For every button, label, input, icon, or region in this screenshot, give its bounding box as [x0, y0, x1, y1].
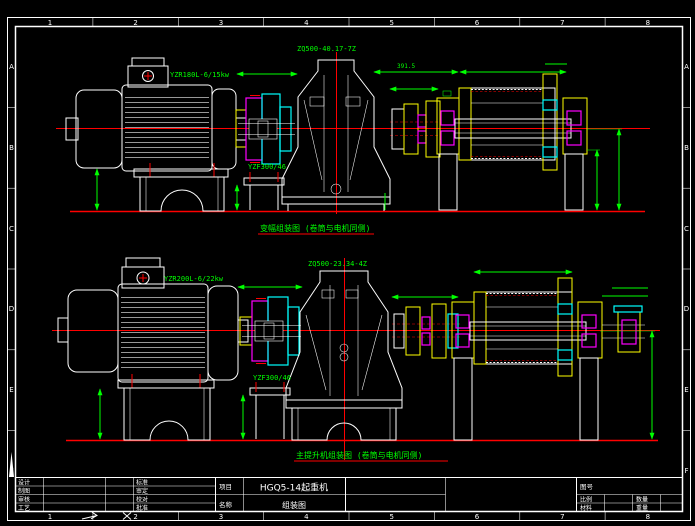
tb-label: 校对: [136, 496, 148, 504]
reducer-label-top: ZQ500-40.17-7Z: [297, 45, 356, 53]
tb-label: 批准: [136, 504, 148, 512]
tb-label: 审核: [18, 496, 30, 504]
brake-coupling-top: [236, 94, 295, 210]
project-label: 项目: [219, 483, 232, 491]
ruler-label: F: [684, 467, 688, 475]
ruler-label: 3: [219, 19, 223, 27]
name-label: 名称: [219, 500, 233, 509]
ruler-label: 2: [133, 513, 137, 521]
tb-label: 制图: [18, 487, 30, 495]
drum-bottom: [452, 278, 645, 440]
drawing-no-label: 图号: [580, 483, 594, 491]
ruler-ticks-sides: [8, 107, 691, 430]
ruler-label: 4: [304, 513, 309, 521]
reducer-label-bottom: ZQ500-23.34-4Z: [308, 260, 367, 268]
drum-pedestal-left: [454, 358, 472, 440]
sheet-frame: 1 2 3 4 5 6 7 8 1 2 3 4 5 6 7 8 A B C D …: [8, 18, 691, 522]
title-block: 设计 制图 审核 工艺 标准 审定 校对 批准 项目 HGQ5-14起重机 名称…: [16, 478, 683, 513]
ruler-label: 8: [646, 513, 650, 521]
motor-fins: [121, 294, 205, 372]
ruler-label: 4: [304, 19, 309, 27]
coupling-label-bottom: YZF300/46: [253, 374, 291, 382]
motor-bottom: [58, 258, 248, 440]
ruler-label: D: [684, 305, 689, 313]
view-top: 391.5 YZR180L-6/15kw YZF300/46 ZQ500-40.…: [56, 45, 650, 234]
inner-frame: [16, 27, 683, 512]
ruler-label: 7: [560, 19, 564, 27]
cad-canvas: 1 2 3 4 5 6 7 8 1 2 3 4 5 6 7 8 A B C D …: [0, 0, 695, 526]
ruler-label: 5: [389, 513, 393, 521]
weight-label: 重量: [636, 504, 648, 512]
dim-text: 391.5: [397, 63, 415, 70]
motor-pedestal: [140, 177, 224, 211]
ruler-ticks-top: [93, 18, 605, 27]
motor-fins: [125, 94, 209, 162]
motor-top: [66, 58, 246, 211]
ruler-label: B: [9, 144, 14, 152]
motor-label-top: YZR180L-6/15kw: [170, 71, 230, 79]
view-bottom: YZR200L-6/22kw YZF300/46 ZQ500-23.34-4Z …: [52, 258, 660, 461]
name-value: 组装图: [282, 500, 306, 510]
ruler-label: 5: [389, 19, 393, 27]
ruler-label: 6: [475, 19, 480, 27]
ruler-label: A: [684, 63, 689, 71]
caption-bottom: 主提升机组装图 (卷筒与电机同侧): [296, 450, 422, 460]
ruler-ticks-bottom: [93, 512, 605, 521]
scale-label: 比例: [580, 496, 592, 504]
outer-border: [8, 18, 691, 521]
plot-arrow-icon: [82, 512, 97, 519]
coupling-label-top: YZF300/46: [248, 163, 286, 171]
caption-top: 变幅组装图 (卷筒与电机同侧): [260, 223, 370, 233]
drum-bearing-right: [563, 98, 587, 154]
project-value: HGQ5-14起重机: [260, 482, 328, 494]
quantity-label: 数量: [636, 496, 648, 504]
ruler-label: D: [9, 305, 14, 313]
fold-cross-icon: [123, 513, 131, 520]
motor-pedestal: [124, 388, 210, 440]
ruler-label: C: [684, 225, 689, 233]
ruler-label: E: [684, 386, 688, 394]
ruler-label: 3: [219, 513, 223, 521]
drum-pedestal-right: [580, 358, 598, 440]
material-label: 材料: [580, 504, 592, 512]
drum-pedestal-right: [565, 154, 583, 210]
ruler-label: B: [684, 144, 689, 152]
ruler-label: A: [9, 63, 14, 71]
ruler-label: 1: [48, 19, 52, 27]
drum-shell: [474, 292, 572, 364]
motor-label-bottom: YZR200L-6/22kw: [164, 275, 224, 283]
drum-pedestal-left: [439, 154, 457, 210]
tb-label: 审定: [136, 487, 148, 495]
tb-label: 工艺: [18, 504, 30, 512]
ruler-label: E: [9, 386, 13, 394]
ruler-label: 6: [475, 513, 480, 521]
drum-top: [437, 74, 587, 210]
ruler-label: 1: [48, 513, 52, 521]
ruler-label: C: [9, 225, 14, 233]
ruler-label: 8: [646, 19, 650, 27]
drum-shell: [459, 88, 555, 160]
tb-label: 设计: [18, 479, 30, 487]
tb-label: 标准: [136, 479, 148, 487]
drawing-sheet: 1 2 3 4 5 6 7 8 1 2 3 4 5 6 7 8 A B C D …: [0, 0, 695, 526]
up-arrow-icon: [9, 452, 14, 477]
ruler-label: 2: [133, 19, 137, 27]
ruler-label: 7: [560, 513, 564, 521]
title-block-signatures: 设计 制图 审核 工艺 标准 审定 校对 批准: [18, 479, 148, 513]
